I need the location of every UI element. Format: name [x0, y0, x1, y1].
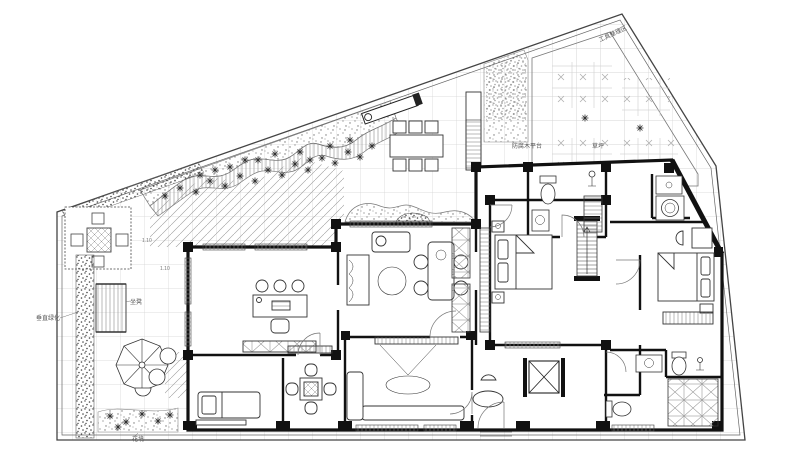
- office-chair: [271, 319, 289, 333]
- toilet: [541, 184, 555, 204]
- closet: [668, 379, 718, 426]
- chair: [286, 383, 298, 395]
- chair: [324, 383, 336, 395]
- kitchen-cabinet: [480, 228, 490, 332]
- sectional-sofa: [347, 372, 363, 420]
- sectional-sofa: [362, 406, 464, 420]
- oval-rug: [386, 376, 430, 394]
- floorplan-drawing: 工具整理区 防腐木平台 草坪 垂直绿化 坐凳 花境 1.10 1.10: [0, 0, 800, 458]
- tea-table: [87, 228, 111, 252]
- shower-head: [698, 358, 703, 363]
- garden-chair: [160, 348, 176, 364]
- stool: [256, 280, 268, 292]
- tea-area: [65, 207, 131, 269]
- label-vertical-green: 垂直绿化: [36, 314, 60, 322]
- pillow: [498, 263, 508, 282]
- stool: [274, 280, 286, 292]
- chair: [305, 364, 317, 376]
- kitchen-counter: [452, 284, 470, 332]
- outdoor-counter: [466, 92, 481, 170]
- dining-chair: [414, 255, 428, 269]
- sofa: [347, 255, 369, 305]
- vertical-green-strip: [76, 255, 94, 438]
- dining-chair: [414, 281, 428, 295]
- toilet: [672, 357, 686, 375]
- kitchen-counter: [452, 228, 470, 278]
- shower-head: [589, 171, 595, 177]
- chair: [305, 402, 317, 414]
- label-deck: 防腐木平台: [512, 142, 542, 150]
- label-bench: 坐凳: [130, 298, 142, 306]
- outdoor-table: [390, 135, 443, 157]
- toilet-tank: [540, 176, 556, 183]
- elevator: [523, 358, 565, 397]
- label-lawn: 草坪: [592, 142, 604, 150]
- label-level-a: 1.10: [142, 238, 152, 244]
- label-level-b: 1.10: [160, 266, 170, 272]
- window-bench: [663, 312, 713, 324]
- chair: [92, 213, 104, 224]
- floorplan-canvas: 工具整理区 防腐木平台 草坪 垂直绿化 坐凳 花境 1.10 1.10: [0, 0, 800, 458]
- chair: [116, 234, 128, 246]
- paver-pad: [622, 78, 670, 116]
- foyer-table: [473, 391, 503, 407]
- garden-chair: [149, 369, 165, 385]
- laundry: [656, 176, 684, 220]
- pillow: [498, 240, 508, 259]
- label-flower-bed: 花境: [132, 435, 144, 443]
- outdoor-dining: [390, 121, 443, 171]
- gravel-area: [484, 50, 528, 142]
- paver-pad: [552, 62, 612, 108]
- toilet-tank: [606, 401, 612, 417]
- stool: [292, 280, 304, 292]
- tv-console: [375, 337, 458, 344]
- flower-strip: [98, 408, 178, 432]
- chair: [71, 234, 83, 246]
- pillow: [701, 279, 710, 297]
- round-rug: [378, 267, 406, 295]
- garden-bench: [96, 284, 126, 332]
- pillow: [701, 257, 710, 275]
- toilet: [613, 402, 631, 416]
- dresser: [692, 228, 712, 248]
